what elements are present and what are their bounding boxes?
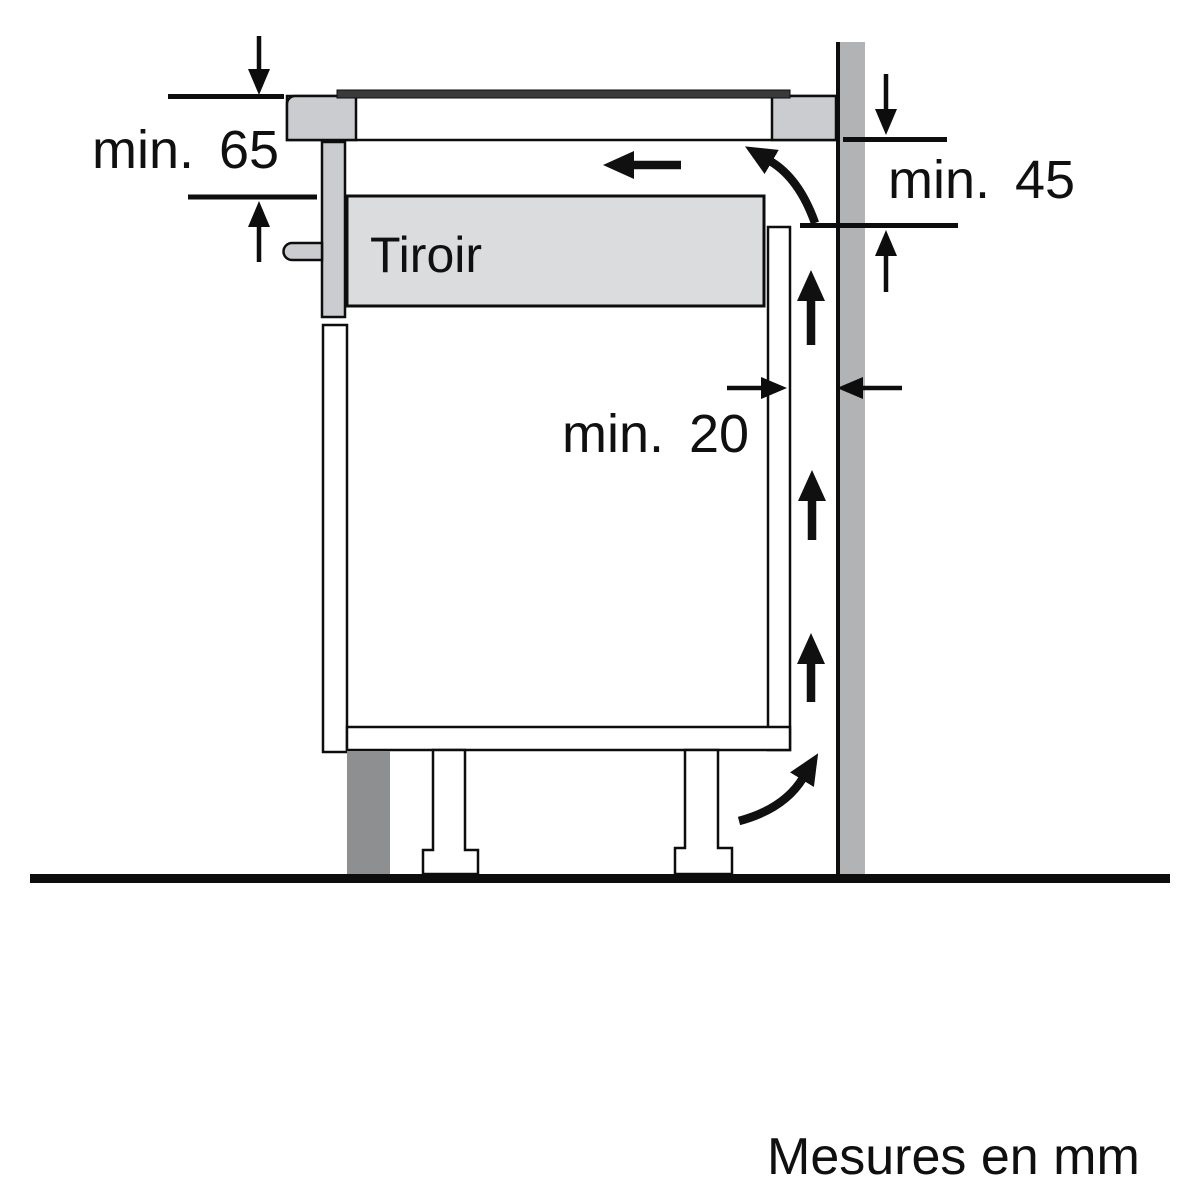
unit-note: Mesures en mm — [767, 1128, 1140, 1186]
dim20-label: min. 20 — [562, 404, 749, 464]
floor-line — [30, 874, 1170, 883]
hob-right-edge — [772, 96, 836, 140]
installation-diagram: Tiroir min. 65 min. 45 min. — [0, 0, 1200, 1200]
drawer-front-panel — [322, 142, 345, 317]
dim65-label: min. 65 — [92, 120, 279, 180]
drawer-label: Tiroir — [370, 227, 482, 283]
worktop-band — [287, 96, 836, 140]
wall-body — [840, 42, 865, 874]
hob-left-edge — [287, 96, 356, 140]
hob-assembly — [287, 90, 836, 140]
hob-glass-top — [337, 90, 790, 98]
cabinet-bottom-panel — [347, 727, 790, 750]
wall-surface-line — [836, 42, 840, 874]
wall — [836, 42, 865, 874]
cabinet-right-panel — [768, 227, 790, 750]
plinth — [347, 751, 390, 874]
drawer-handle — [284, 243, 323, 260]
cabinet-left-panel — [323, 325, 347, 752]
dim45-label: min. 45 — [888, 150, 1075, 210]
